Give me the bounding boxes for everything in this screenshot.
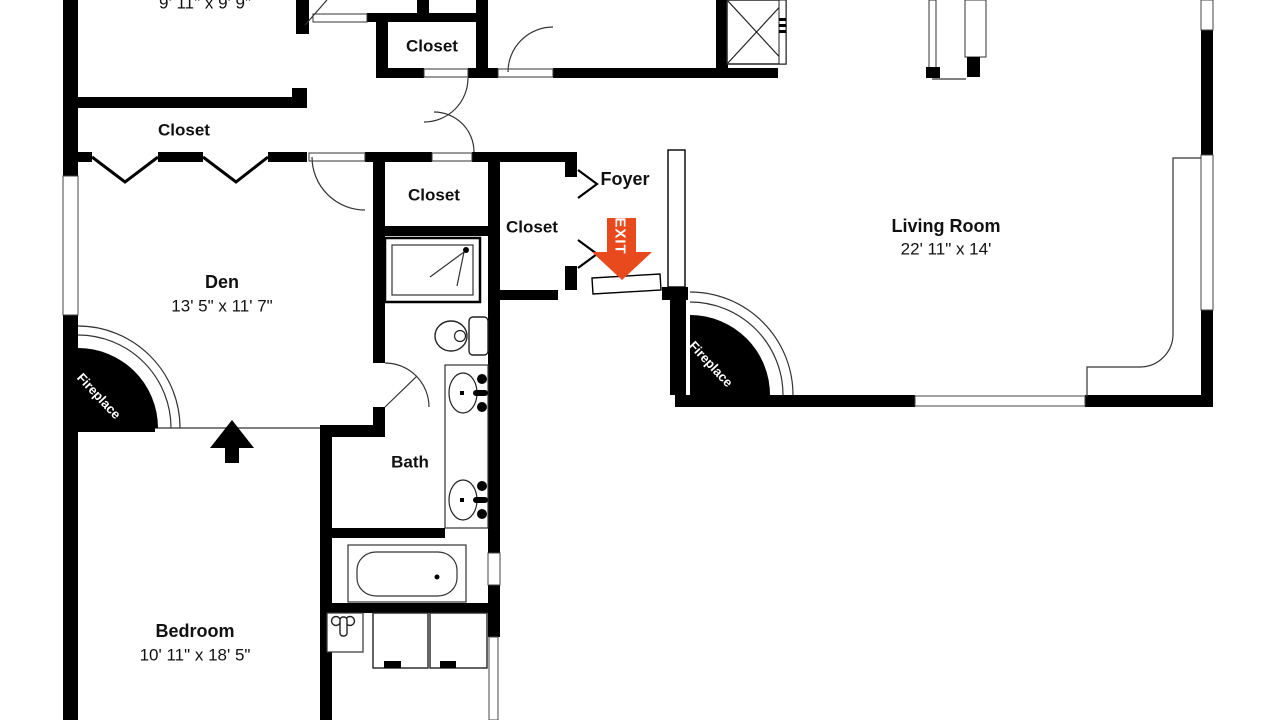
- window-ledge: [1087, 158, 1201, 397]
- toilet-icon: [435, 317, 488, 355]
- window-den-left: [63, 176, 78, 315]
- entry-door-leaf: [592, 274, 661, 294]
- room-label-den: Den: [205, 273, 239, 293]
- room-dims-den: 13' 5" x 11' 7": [171, 298, 272, 317]
- door-panel: [313, 14, 367, 22]
- window-laundry-right: [489, 637, 498, 720]
- room-label-living-room: Living Room: [892, 217, 1001, 237]
- appliance-icon: [373, 613, 428, 668]
- bifold-door-icon: [203, 157, 268, 182]
- room-dims-top-room: 9' 11" x 9' 9": [159, 0, 251, 13]
- bathtub-icon: [348, 545, 466, 602]
- room-label-foyer-closet: Closet: [506, 219, 558, 238]
- door-arc: [434, 112, 474, 152]
- door-panel: [498, 69, 553, 77]
- window-living-right-top: [1201, 0, 1213, 30]
- room-label-bath: Bath: [391, 454, 429, 473]
- door-arc: [312, 157, 365, 210]
- french-doors: [926, 0, 986, 79]
- window-bath-right: [488, 553, 500, 585]
- room-label-hall-closet-lower: Closet: [408, 187, 460, 206]
- vanity-sinks-icon: [445, 365, 488, 528]
- appliance-icon: [430, 613, 487, 668]
- north-arrow-icon: [210, 420, 254, 463]
- room-label-den-closet: Closet: [158, 122, 210, 141]
- closet-door-chevron-icon: [578, 170, 597, 198]
- exit-label: EXIT: [612, 217, 629, 254]
- door-panel: [309, 153, 365, 161]
- floor-plan-drawing: Fireplace Fireplace: [0, 0, 1280, 720]
- door-arc: [424, 78, 468, 122]
- walls: [63, 0, 1213, 720]
- room-dims-bedroom: 10' 11" x 18' 5": [140, 647, 251, 666]
- room-label-hall-closet-upper: Closet: [406, 38, 458, 57]
- laundry-sink-icon: [327, 613, 363, 652]
- entry-door-open-leaf: [668, 150, 685, 287]
- window-living-right: [1201, 155, 1213, 310]
- door-panel: [424, 69, 468, 77]
- door-arc: [508, 27, 553, 72]
- fireplace-living-icon: Fireplace: [686, 292, 793, 395]
- door-panel: [432, 153, 472, 161]
- washer-dryer-stack-icon: [727, 0, 786, 64]
- floor-plan: Fireplace Fireplace: [0, 0, 1280, 720]
- bifold-door-icon: [92, 157, 158, 182]
- room-label-foyer: Foyer: [600, 170, 649, 190]
- exit-arrow-icon: EXIT: [592, 217, 652, 280]
- doors: [92, 0, 986, 428]
- room-label-bedroom: Bedroom: [155, 622, 234, 642]
- room-dims-living-room: 22' 11" x 14': [901, 241, 992, 260]
- fireplace-den-icon: Fireplace: [74, 326, 180, 428]
- window-living-bottom: [915, 396, 1085, 406]
- door-leaf: [385, 376, 417, 407]
- shower-icon: [385, 238, 480, 302]
